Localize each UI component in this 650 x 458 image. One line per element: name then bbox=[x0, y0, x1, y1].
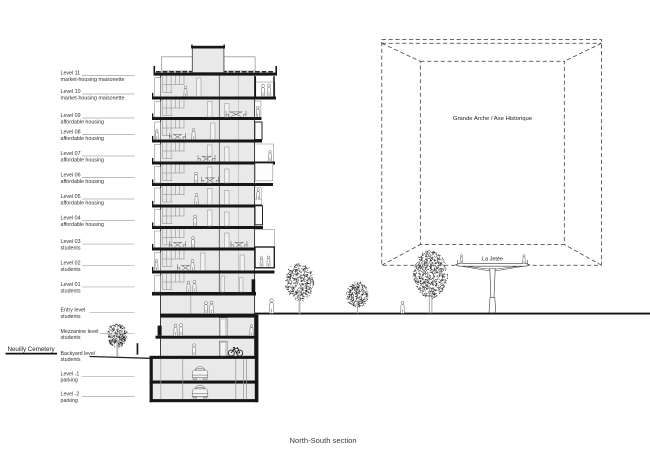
svg-text:Level 05: Level 05 bbox=[61, 194, 81, 200]
svg-text:Level 06: Level 06 bbox=[61, 173, 81, 179]
svg-text:Level 10: Level 10 bbox=[61, 89, 81, 95]
svg-text:affordable housing: affordable housing bbox=[61, 222, 105, 228]
svg-text:Neuilly Cemetery: Neuilly Cemetery bbox=[8, 346, 56, 353]
svg-text:affordable housing: affordable housing bbox=[61, 136, 105, 142]
svg-text:students: students bbox=[61, 267, 81, 273]
svg-text:North-South section: North-South section bbox=[290, 436, 357, 445]
svg-text:affordable housing: affordable housing bbox=[61, 157, 105, 163]
svg-text:market-housing maisonette: market-housing maisonette bbox=[61, 95, 125, 101]
svg-text:La Jetée: La Jetée bbox=[482, 257, 503, 263]
svg-text:students: students bbox=[61, 246, 81, 252]
svg-text:affordable housing: affordable housing bbox=[61, 200, 105, 206]
svg-text:parking: parking bbox=[61, 378, 78, 384]
svg-text:market-housing maisonette: market-housing maisonette bbox=[61, 77, 125, 83]
svg-text:Level 08: Level 08 bbox=[61, 130, 81, 136]
svg-text:Level -2: Level -2 bbox=[61, 392, 80, 398]
svg-text:Level 07: Level 07 bbox=[61, 151, 81, 157]
svg-text:Level 01: Level 01 bbox=[61, 282, 81, 288]
svg-text:students: students bbox=[61, 288, 81, 294]
svg-text:students: students bbox=[61, 314, 81, 320]
svg-text:affordable housing: affordable housing bbox=[61, 179, 105, 185]
svg-text:students: students bbox=[61, 335, 81, 341]
svg-text:Level 03: Level 03 bbox=[61, 239, 81, 245]
svg-text:Entry level: Entry level bbox=[61, 308, 86, 314]
svg-text:Mezzanine level: Mezzanine level bbox=[61, 329, 99, 335]
svg-text:students: students bbox=[61, 357, 81, 363]
svg-text:Level 04: Level 04 bbox=[61, 216, 81, 222]
svg-text:Level 09: Level 09 bbox=[61, 113, 81, 119]
svg-text:Grande Arche / Axe Historique: Grande Arche / Axe Historique bbox=[453, 116, 533, 122]
svg-text:Level 11: Level 11 bbox=[61, 71, 81, 77]
svg-text:parking: parking bbox=[61, 398, 78, 404]
svg-text:Level -1: Level -1 bbox=[61, 371, 80, 377]
svg-text:Level 02: Level 02 bbox=[61, 261, 81, 267]
svg-text:affordable housing: affordable housing bbox=[61, 119, 105, 125]
